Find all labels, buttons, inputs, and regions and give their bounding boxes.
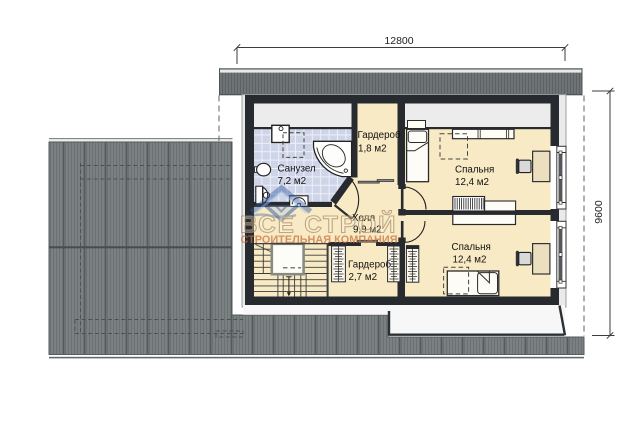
svg-text:1,8 м2: 1,8 м2 xyxy=(358,144,387,155)
svg-text:СТРОИТЕЛЬНАЯ КОМПАНИЯ: СТРОИТЕЛЬНАЯ КОМПАНИЯ xyxy=(241,234,398,246)
svg-text:12,4 м2: 12,4 м2 xyxy=(455,177,489,188)
svg-text:12,4 м2: 12,4 м2 xyxy=(453,255,487,266)
svg-text:Спальня: Спальня xyxy=(455,165,494,176)
svg-text:Спальня: Спальня xyxy=(452,242,491,253)
svg-text:Гардероб: Гардероб xyxy=(358,130,401,141)
svg-text:2,7 м2: 2,7 м2 xyxy=(349,272,378,283)
svg-text:12800: 12800 xyxy=(384,35,413,47)
svg-text:Санузел: Санузел xyxy=(278,164,316,175)
svg-text:Гардероб: Гардероб xyxy=(348,260,391,271)
svg-text:9600: 9600 xyxy=(593,200,605,224)
